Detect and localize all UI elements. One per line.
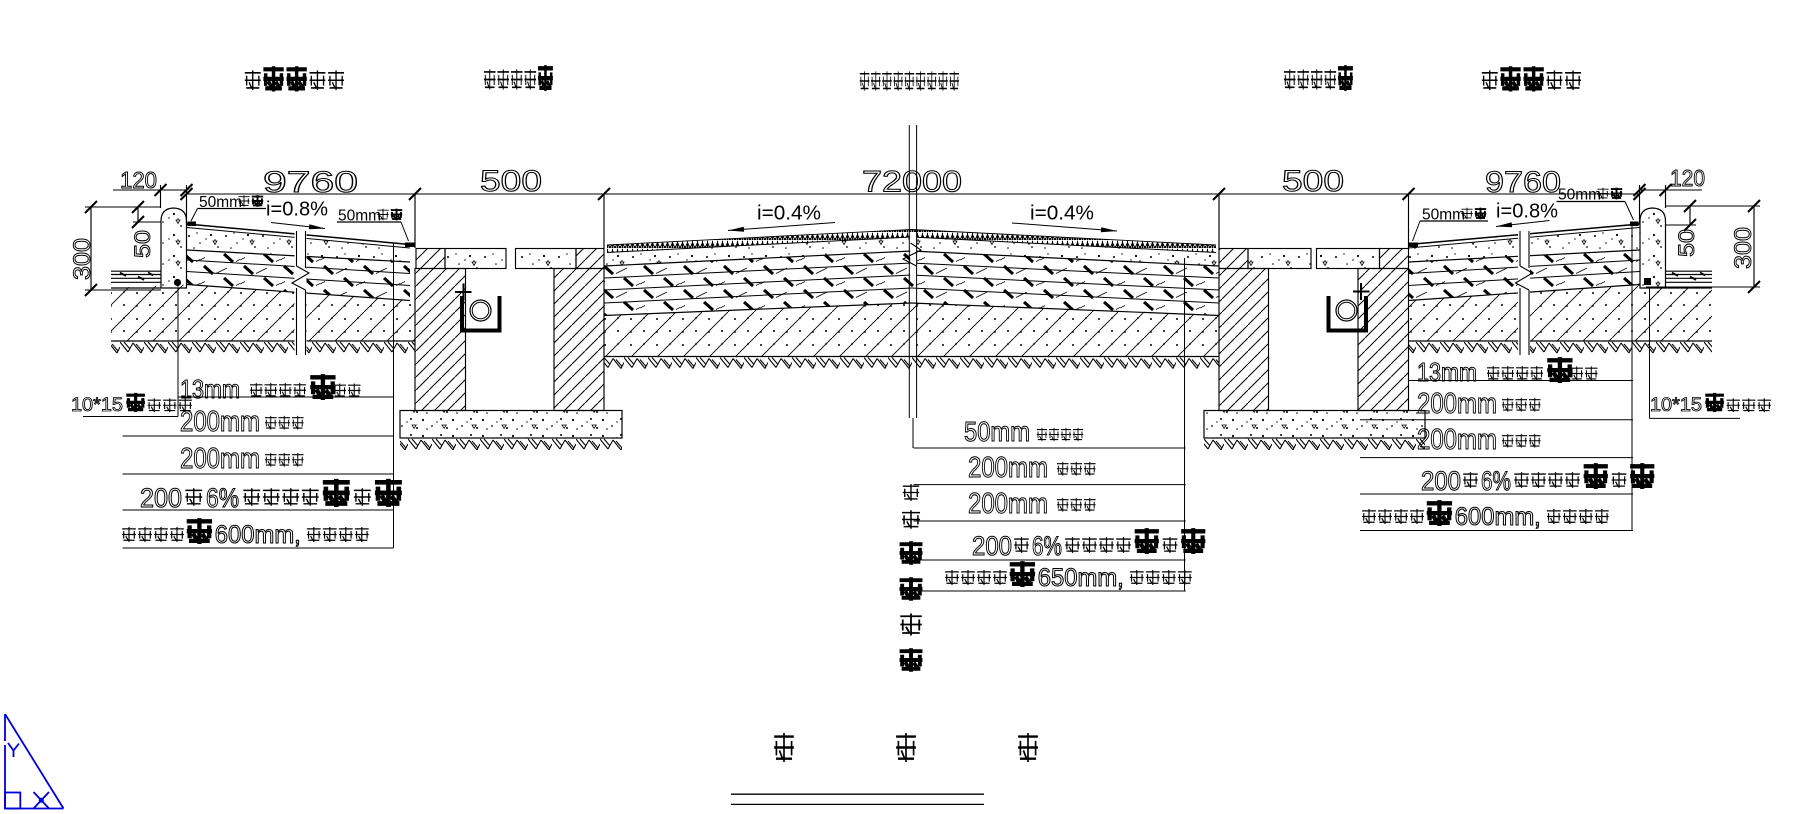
svg-text:i=0.4%: i=0.4%: [757, 203, 821, 225]
svg-text:i=0.4%: i=0.4%: [1030, 203, 1094, 225]
svg-text:600mm,: 600mm,: [1455, 503, 1541, 531]
svg-text:6%: 6%: [1481, 466, 1511, 496]
svg-text:10*15: 10*15: [1650, 395, 1702, 416]
svg-text:10*15: 10*15: [71, 395, 123, 416]
svg-text:300: 300: [69, 238, 96, 280]
svg-text:200mm: 200mm: [180, 406, 260, 438]
svg-text:650mm,: 650mm,: [1038, 564, 1124, 592]
svg-text:120: 120: [120, 167, 157, 193]
svg-text:9760: 9760: [1485, 166, 1561, 199]
svg-text:6%: 6%: [206, 483, 239, 513]
svg-text:200mm: 200mm: [1417, 388, 1497, 420]
svg-text:9760: 9760: [263, 166, 358, 199]
svg-text:500: 500: [1282, 165, 1344, 198]
svg-text:500: 500: [480, 165, 542, 198]
svg-text:50: 50: [1674, 229, 1699, 257]
svg-text:i=0.8%: i=0.8%: [1496, 201, 1558, 223]
svg-text:200mm: 200mm: [968, 488, 1048, 520]
svg-text:120: 120: [1670, 165, 1705, 191]
svg-text:13mm: 13mm: [1417, 357, 1477, 387]
svg-text:300: 300: [1730, 227, 1757, 269]
svg-text:200mm: 200mm: [180, 443, 260, 475]
svg-text:200: 200: [972, 531, 1012, 561]
svg-text:13mm: 13mm: [180, 374, 240, 404]
svg-text:72000: 72000: [862, 166, 962, 199]
svg-text:200mm: 200mm: [968, 452, 1048, 484]
svg-text:i=0.8%: i=0.8%: [266, 199, 328, 221]
svg-text:50mm: 50mm: [964, 416, 1030, 447]
svg-text:200: 200: [140, 483, 182, 513]
svg-text:6%: 6%: [1032, 531, 1062, 561]
svg-text:200: 200: [1421, 466, 1461, 496]
svg-text:600mm,: 600mm,: [215, 521, 301, 549]
svg-text:200mm: 200mm: [1417, 424, 1497, 456]
svg-text:50: 50: [130, 230, 155, 258]
